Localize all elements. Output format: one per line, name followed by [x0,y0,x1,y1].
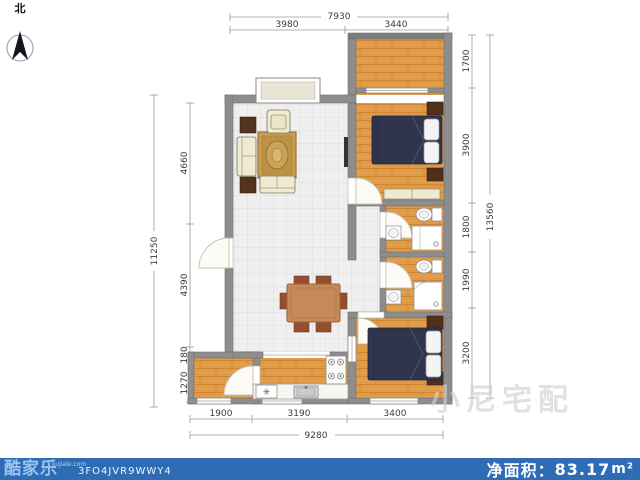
plan-code: 3FO4JVR9WWY4 [78,466,172,477]
dim-left-seg-2: 4390 [180,273,190,296]
net-area-value: 83.17 [555,460,611,479]
pillow [424,119,439,140]
dim-left-seg-3: 180 [180,346,190,363]
sofa [237,137,256,176]
bay-window [256,78,320,103]
dim-right-seg-5: 3200 [462,341,472,364]
watermark-text: 小尼宅配 [430,383,574,418]
toilet [416,208,442,221]
dim-right-seg-1: 1700 [462,49,472,72]
floorplan-canvas: ✳ [0,0,640,455]
dim-left-seg-4: 1270 [180,371,190,394]
dim-right-seg-2: 3900 [462,133,472,156]
dim-top-total: 7930 [328,12,351,22]
dim-bottom-seg-3: 3400 [384,409,407,419]
side-table-bottom [240,177,256,193]
dim-bottom-seg-1: 1900 [210,409,233,419]
bedroom-2-left-window [348,336,356,362]
floorplan-page: ✳ [0,0,640,480]
side-table-top [240,117,256,133]
compass: 北 [7,1,33,61]
bed-1 [372,116,442,164]
dim-left-total: 11250 [150,236,160,265]
footer-bar: 酷家乐 kujiale.com 3FO4JVR9WWY4 净面积： 83.17 … [0,458,640,480]
dining-table [287,284,340,322]
stove [326,356,346,384]
shower [412,226,442,250]
net-area-label: 净面积： [487,457,555,480]
fridge: ✳ [256,385,277,398]
dim-left-seg-1: 4660 [180,151,190,174]
net-area: 净面积： 83.17 m² [487,458,634,480]
north-arrow-icon [12,31,28,60]
toilet [416,260,442,273]
nightstand [427,102,443,115]
compass-north-label: 北 [15,1,26,15]
sink [386,290,401,304]
nightstand [427,316,443,329]
net-area-unit: m² [611,461,634,477]
dresser [384,189,440,199]
bed-2 [368,328,442,380]
dim-top-seg-1: 3980 [276,20,299,30]
dim-right-seg-3: 1800 [462,215,472,238]
bedroom-2-bottom-window [370,398,418,404]
storage-window [197,398,231,404]
loveseat [260,176,295,193]
dim-bottom-seg-2: 3190 [288,409,311,419]
pillow [426,355,441,377]
balcony-floor [356,39,444,95]
dim-top-seg-2: 3440 [385,20,408,30]
nightstand [427,168,443,181]
svg-text:✳: ✳ [263,388,271,398]
kujiale-logo: 酷家乐 [4,458,58,480]
tv [344,137,348,167]
dim-right-total: 13560 [486,202,496,231]
dim-bottom-total: 9280 [305,431,328,441]
balcony-window [366,88,428,93]
pillow [426,331,441,353]
shower [414,282,442,310]
kitchen-sink [294,386,318,398]
armchair [267,110,290,133]
sink [386,226,401,240]
entry-door [199,238,233,268]
dim-right-seg-4: 1990 [462,268,472,291]
pillow [424,142,439,163]
